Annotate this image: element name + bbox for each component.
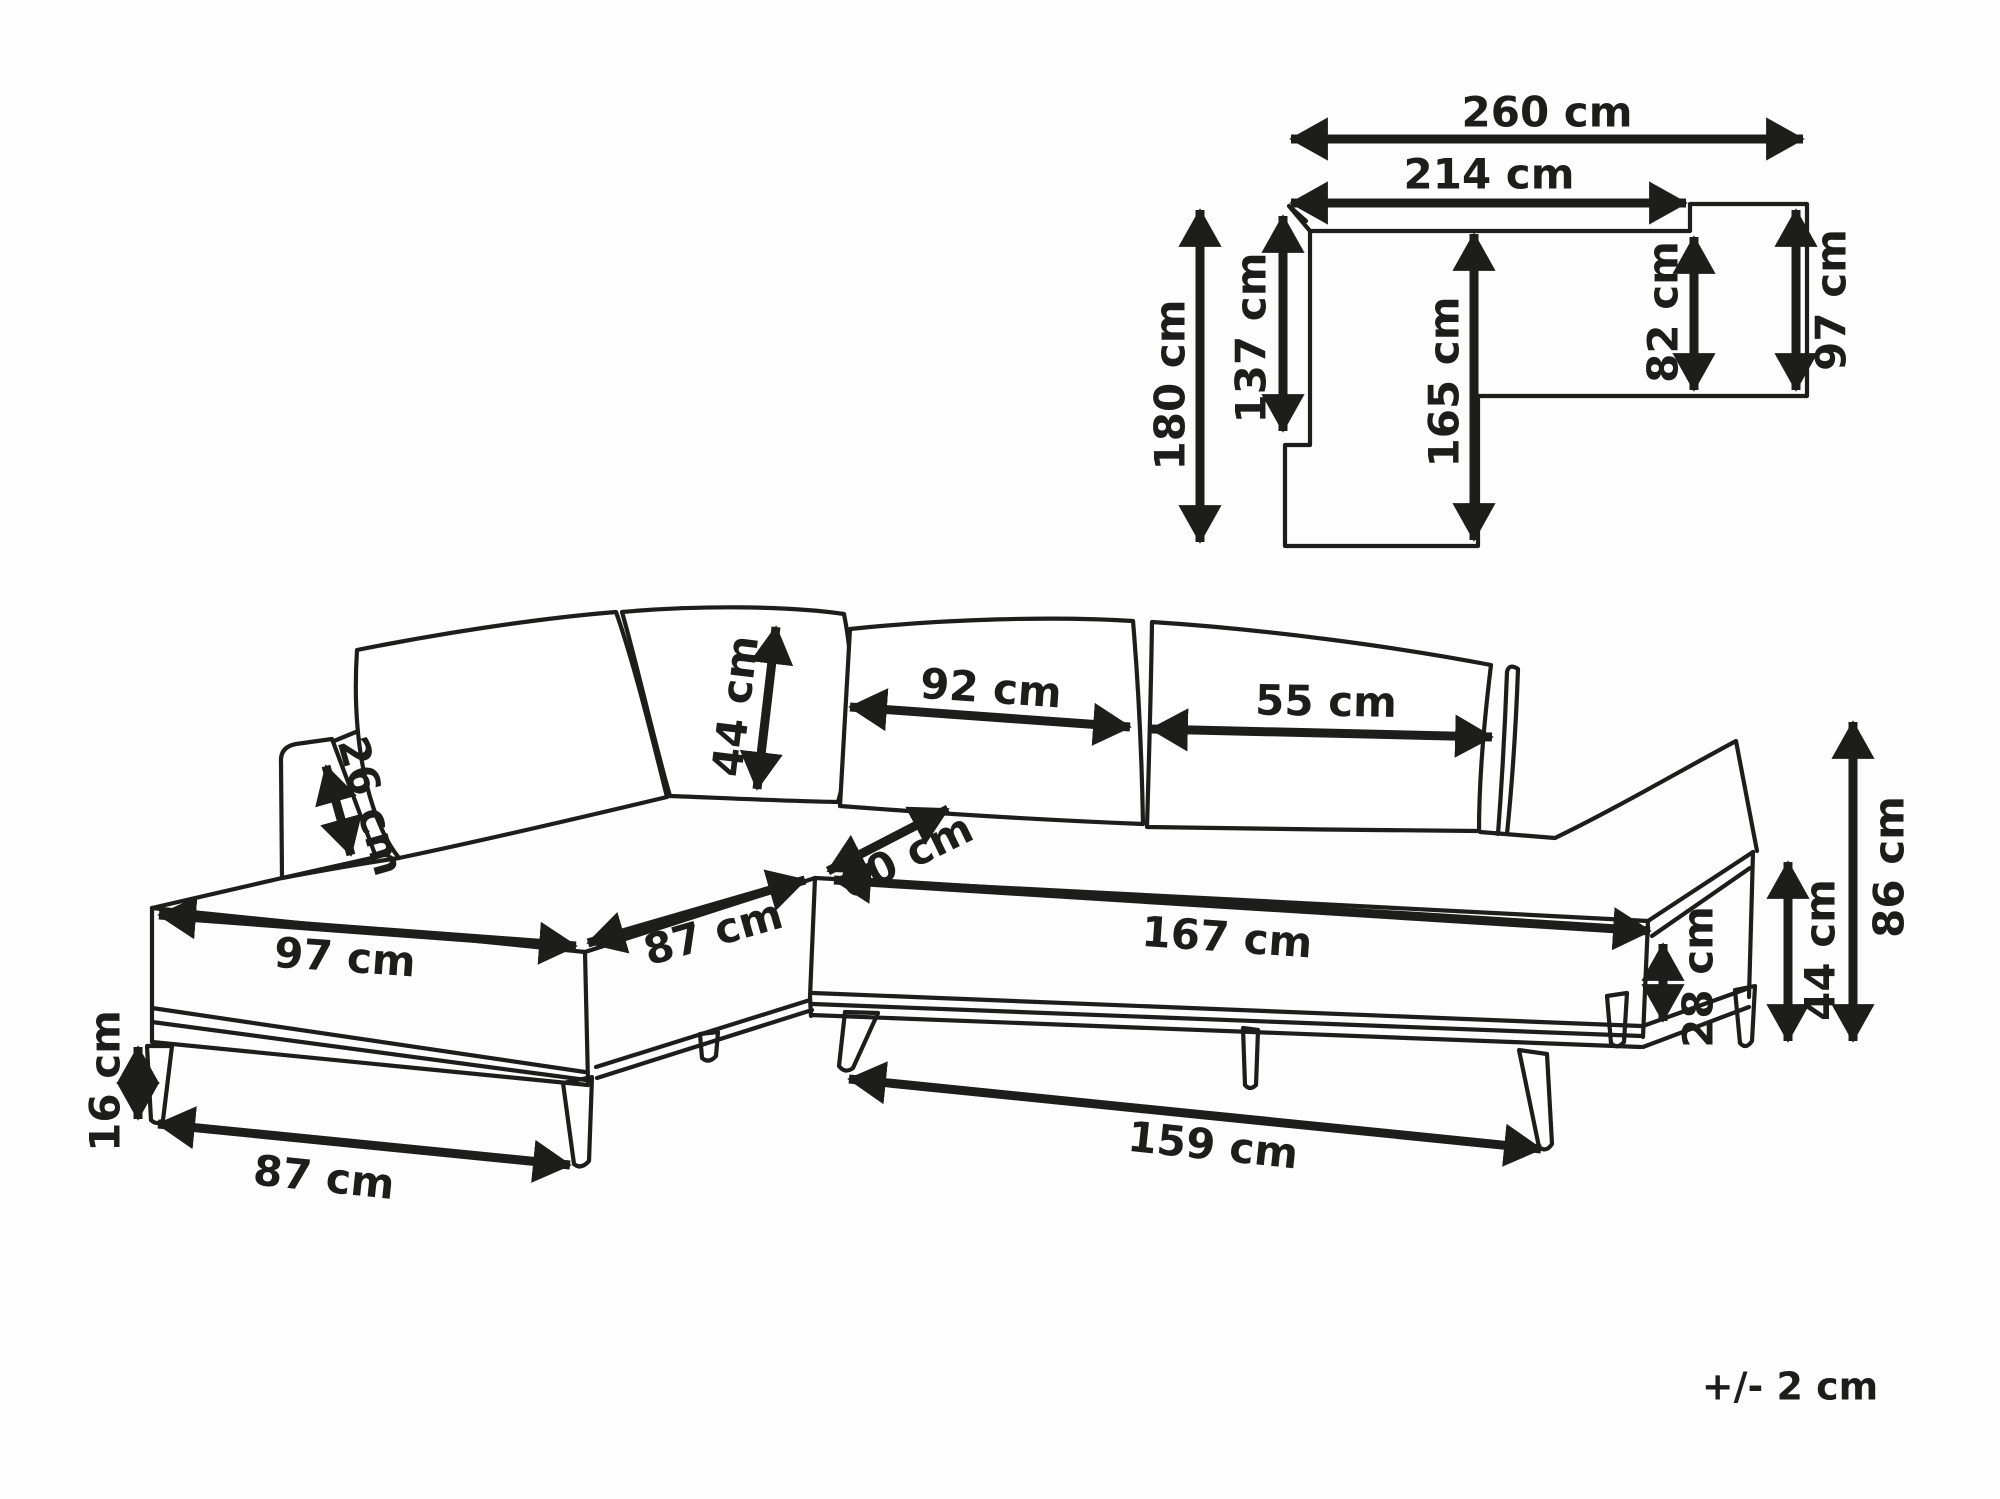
tolerance-note: +/- 2 cm [1702,1364,1879,1408]
dim-label: 167 cm [1140,907,1314,968]
dim-label: 165 cm [1420,297,1469,468]
dim-label: 16 cm [81,1010,130,1152]
dim-label: 137 cm [1227,253,1276,424]
chaise-front-bottom-rails [152,1008,588,1085]
dim-plan-chaise-inner-depth: 165 cm [1420,234,1474,540]
dim-label: 60 cm [832,803,981,909]
dim-label: 260 cm [1462,88,1633,137]
dim-label: 82 cm [1639,241,1688,383]
front-face-bottom-rails [811,993,1641,1047]
dim-label: 214 cm [1404,150,1575,199]
leg-front-right [1519,1050,1552,1149]
dim-label: 97 cm [273,928,418,987]
seat-left-edge [152,878,282,908]
dim-label: 180 cm [1146,300,1195,471]
dim-base-side-length: 159 cm [849,1079,1541,1178]
front-right-corner-edge [1643,921,1648,1037]
dim-corner-seat-depth: 60 cm [828,803,981,909]
dim-label: 86 cm [1865,796,1914,938]
dim-overall-height: 86 cm [1853,722,1914,1041]
dim-label: 55 cm [1255,675,1398,726]
dim-seat-edge-thickness: 28 cm [1663,906,1723,1048]
dim-right-seat-length: 167 cm [834,880,1650,968]
dim-label: 87 cm [251,1145,397,1209]
dim-plan-overall-depth: 180 cm [1146,210,1200,542]
dim-label: 44 cm [1796,879,1845,1021]
inner-corner-edge [810,878,815,1016]
sofa-perspective-view: 97 cm 87 cm 60 cm 92 cm 55 cm 44 cm 26 c… [81,607,1914,1209]
dim-base-front-width: 87 cm [158,1124,570,1209]
diagram-page: 260 cm 214 cm 180 cm 137 cm 165 cm 82 cm… [0,0,2000,1499]
dim-label: 28 cm [1674,906,1723,1048]
leg-middle [1243,1028,1258,1088]
back-right-corner-edge [1749,852,1753,997]
back-top-edge-right-end [1480,741,1757,851]
leg-chaise-right [563,1077,592,1166]
dim-label: 97 cm [1807,229,1856,371]
plan-view: 260 cm 214 cm 180 cm 137 cm 165 cm 82 cm… [1146,88,1856,546]
leg-under-seat-left [839,1012,878,1071]
dim-chaise-side-length: 87 cm [588,880,805,975]
dim-chaise-front-width: 97 cm [159,915,576,987]
plan-outline [1285,204,1807,546]
leg-right-end [1735,986,1755,1046]
leg-back-right [1607,993,1627,1046]
dim-leg-height: 16 cm [81,1010,138,1152]
plan-corner-fold [1289,206,1310,231]
chaise-back-pillow [356,612,667,858]
dim-plan-chaise-back-depth: 137 cm [1227,216,1283,431]
dim-plan-overall-width: 260 cm [1291,88,1803,139]
chaise-corner-edge [585,952,588,1082]
sofa-dimension-diagram: 260 cm 214 cm 180 cm 137 cm 165 cm 82 cm… [0,0,2000,1499]
dim-plan-body-width: 214 cm [1291,150,1686,203]
dim-plan-right-seat-depth: 82 cm [1639,237,1694,390]
back-stile-right [1498,667,1518,834]
dim-seat-height: 44 cm [1788,862,1845,1041]
leg-front-left [147,1046,172,1123]
dim-label: 92 cm [919,659,1064,718]
